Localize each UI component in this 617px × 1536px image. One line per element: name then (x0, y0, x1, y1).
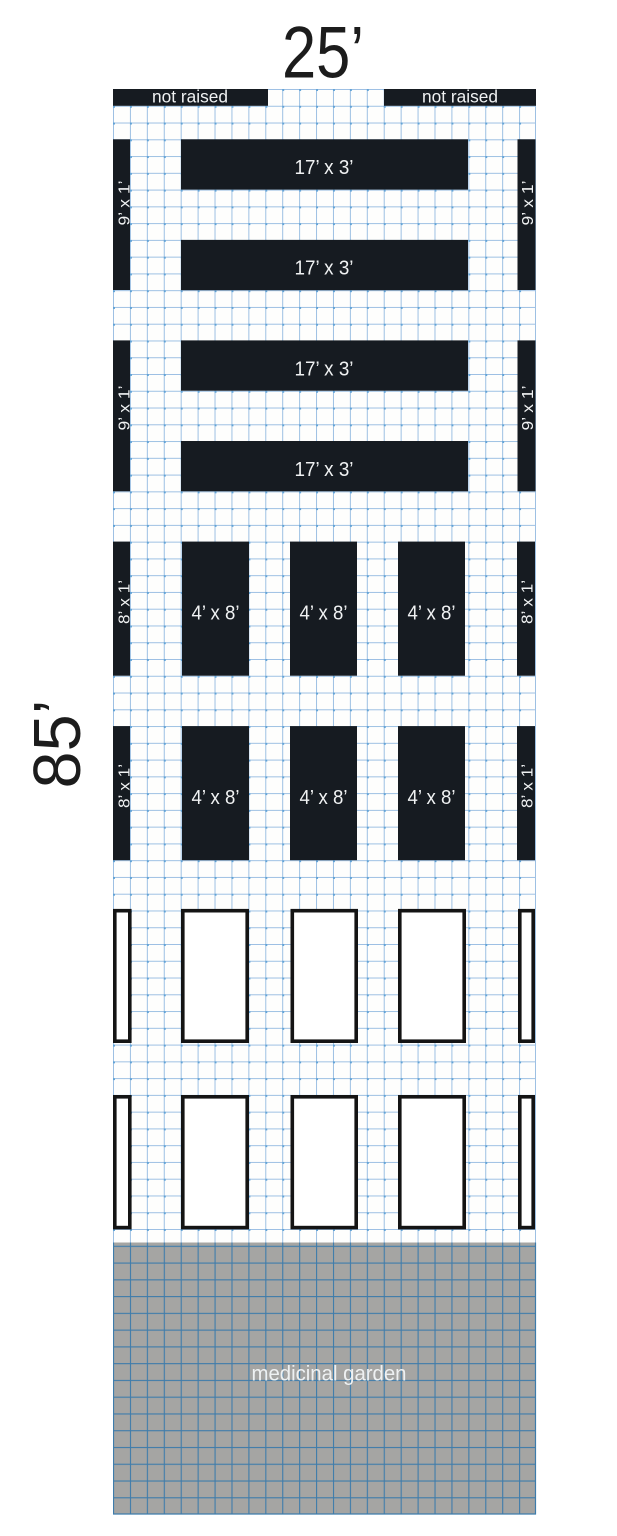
svg-text:9’ x 1’: 9’ x 1’ (520, 386, 537, 431)
svg-text:25’: 25’ (282, 13, 364, 94)
svg-text:85’: 85’ (20, 700, 95, 789)
svg-text:not raised: not raised (422, 87, 498, 107)
svg-text:9’ x 1’: 9’ x 1’ (520, 181, 537, 226)
svg-text:medicinal garden: medicinal garden (252, 1362, 407, 1386)
svg-text:17’ x 3’: 17’ x 3’ (295, 459, 354, 481)
svg-text:8’ x 1’: 8’ x 1’ (117, 580, 134, 624)
svg-text:4’ x 8’: 4’ x 8’ (192, 787, 240, 809)
svg-text:8’ x 1’: 8’ x 1’ (520, 580, 537, 624)
svg-text:8’ x 1’: 8’ x 1’ (117, 764, 134, 808)
svg-text:4’ x 8’: 4’ x 8’ (300, 787, 348, 809)
svg-text:17’ x 3’: 17’ x 3’ (295, 359, 354, 381)
svg-text:9’ x 1’: 9’ x 1’ (117, 181, 134, 226)
svg-text:not raised: not raised (152, 87, 228, 107)
svg-text:4’ x 8’: 4’ x 8’ (408, 603, 456, 625)
svg-text:4’ x 8’: 4’ x 8’ (192, 603, 240, 625)
svg-text:4’ x 8’: 4’ x 8’ (300, 603, 348, 625)
svg-text:17’ x 3’: 17’ x 3’ (295, 258, 354, 280)
svg-text:9’ x 1’: 9’ x 1’ (117, 386, 134, 431)
svg-text:17’ x 3’: 17’ x 3’ (295, 157, 354, 179)
svg-text:4’ x 8’: 4’ x 8’ (408, 787, 456, 809)
svg-text:8’ x 1’: 8’ x 1’ (520, 764, 537, 808)
